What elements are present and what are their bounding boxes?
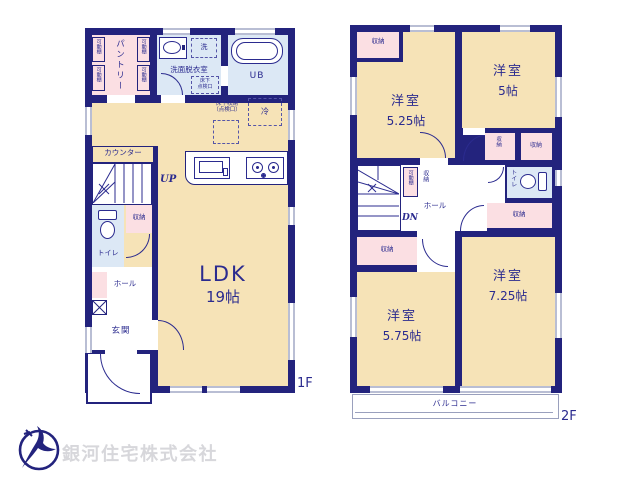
bathtub-icon	[231, 38, 283, 64]
toilet-tank-icon	[98, 210, 117, 220]
kitchen-counter	[185, 151, 288, 185]
faucet-icon	[182, 45, 185, 50]
vanity-sink-icon	[159, 37, 187, 59]
entrance-door-arc	[100, 354, 140, 394]
closet-2f-label: 収納	[372, 38, 385, 45]
bedroom-5-75-size: 5.75帖	[383, 330, 422, 343]
bath-door-opening	[221, 66, 228, 86]
refrigerator-label: 冷	[261, 108, 269, 117]
hall-1f-label: ホール	[114, 280, 137, 288]
company-logo	[12, 422, 64, 476]
balcony: バルコニー	[352, 394, 559, 419]
movable-shelf-box: 可動棚	[137, 37, 150, 62]
refrigerator-space: 冷	[248, 98, 282, 126]
closet-2f-label: 収納	[495, 136, 501, 147]
bedroom-7-25-label: 洋室	[493, 270, 523, 285]
window	[235, 28, 275, 35]
closet-2f-label: 収納	[530, 143, 542, 150]
bedroom-5-25-size: 5.25帖	[387, 115, 426, 128]
closet-2f-label: 収納	[381, 246, 394, 253]
stairs-down-label: DN	[402, 213, 418, 223]
bathtub-inner-icon	[236, 42, 278, 60]
shoe-box	[92, 300, 107, 315]
movable-shelf-label: 可動棚	[407, 170, 413, 185]
storage-1f-label: 収納	[133, 214, 146, 221]
window	[555, 77, 562, 117]
underfloor-storage-hatch	[213, 120, 239, 144]
movable-shelf-label: 可動棚	[95, 67, 101, 82]
bird-logo-icon	[12, 422, 64, 476]
window	[288, 110, 295, 140]
window	[207, 386, 240, 393]
stairs-up-label: UP	[160, 174, 176, 185]
counter-label: カウンター	[104, 149, 142, 157]
kitchen-sink-icon	[194, 157, 230, 179]
toilet-bowl-icon	[520, 174, 536, 189]
floor-2-tag: 2F	[561, 410, 577, 425]
burner-icon	[268, 162, 279, 173]
inner-wall	[152, 146, 158, 386]
unit-bath-label: UB	[250, 71, 265, 81]
laundry-label: 洗	[201, 44, 208, 52]
stove-icon	[246, 157, 284, 179]
floor-2-plan: 収納 洋室 5.25帖 洋室 5帖 収納 収納 可動棚	[350, 25, 562, 393]
hall-closet-strip	[92, 272, 107, 298]
balcony-label: バルコニー	[433, 400, 478, 409]
underfloor-hatch-line2: 点検口	[197, 85, 212, 91]
bedroom-5-label: 洋室	[493, 65, 523, 80]
door-opening	[420, 158, 448, 165]
bedroom-5-75-label: 洋室	[387, 310, 417, 325]
door-arc	[463, 135, 485, 161]
laundry-space: 洗	[191, 38, 217, 58]
ldk-size-label: 19帖	[206, 289, 240, 306]
pantry-label: パントリー	[114, 39, 124, 92]
toilet-2f-label: トイレ	[509, 169, 516, 187]
door-opening	[463, 128, 485, 135]
bedroom-7-25-size: 7.25帖	[489, 290, 528, 303]
window	[370, 386, 443, 393]
burner-icon	[252, 162, 263, 173]
window	[170, 386, 202, 393]
burner-icon	[261, 173, 266, 178]
closet-2f-label: 収納	[513, 211, 526, 218]
toilet-1f-label: トイレ	[98, 250, 119, 258]
bedroom-5-25-label: 洋室	[391, 95, 421, 110]
toilet-bowl-icon	[100, 221, 115, 239]
window	[85, 107, 92, 135]
movable-shelf-box-2f: 可動棚	[403, 167, 418, 197]
entrance-porch	[86, 354, 152, 404]
movable-shelf-label: 可動棚	[140, 67, 146, 82]
kitchen-faucet-icon	[223, 168, 228, 176]
window	[85, 327, 92, 353]
pantry-opening	[107, 95, 135, 103]
entrance-label: 玄関	[111, 327, 130, 337]
window	[500, 25, 530, 32]
company-name: 銀河住宅株式会社	[62, 440, 218, 466]
window	[350, 297, 357, 337]
storage-vertical-label: 収納	[421, 170, 428, 182]
bedroom-5-size: 5帖	[498, 85, 518, 98]
ldk-label: LDK	[199, 263, 247, 287]
toilet-tank-icon	[538, 172, 547, 191]
stairs-1f	[92, 163, 152, 205]
floor-1-tag: 1F	[297, 377, 313, 392]
room-bedroom-5	[462, 32, 555, 128]
floorplan-canvas: 可動棚 可動棚 可動棚 可動棚 パントリー 洗 洗面脱衣室 床下 点検口 UB …	[0, 0, 640, 480]
washroom-door-opening	[161, 95, 185, 103]
underfloor-hatch: 床下 点検口	[191, 76, 219, 94]
movable-shelf-label: 可動棚	[95, 39, 101, 54]
hall-2f-label: ホール	[424, 202, 447, 210]
movable-shelf-label: 可動棚	[140, 39, 146, 54]
window	[555, 293, 562, 338]
window	[288, 303, 295, 360]
balcony-rail-line	[355, 412, 553, 413]
window	[350, 77, 357, 115]
movable-shelf-box: 可動棚	[137, 65, 150, 91]
movable-shelf-box: 可動棚	[92, 37, 105, 62]
sink-basin-icon	[163, 41, 181, 54]
kitchen-sink-basin-icon	[199, 161, 223, 173]
window	[555, 170, 562, 186]
washroom-label: 洗面脱衣室	[170, 66, 208, 74]
window	[163, 28, 190, 35]
window	[460, 386, 551, 393]
window	[410, 25, 434, 32]
window	[288, 207, 295, 225]
room-bedroom-7-25	[462, 237, 555, 386]
stairs-2f	[357, 165, 401, 231]
movable-shelf-box: 可動棚	[92, 65, 105, 91]
floor-1-plan: 可動棚 可動棚 可動棚 可動棚 パントリー 洗 洗面脱衣室 床下 点検口 UB …	[85, 28, 295, 393]
